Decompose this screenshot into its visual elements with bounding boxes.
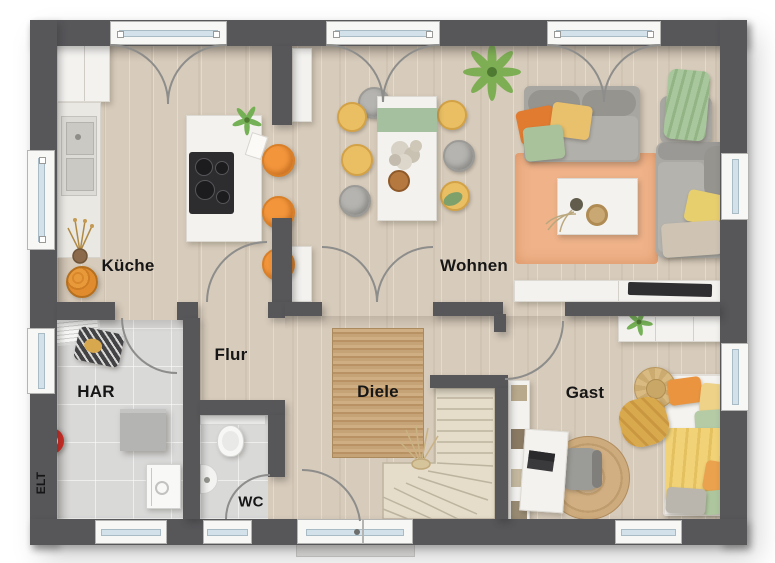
kitchen-tall-cabinet	[57, 40, 110, 102]
window-dining-top	[326, 21, 440, 45]
dining-chair-gray	[443, 140, 475, 172]
window-har-bottom	[95, 520, 167, 544]
window-kitchen-top	[110, 21, 227, 45]
table-runner	[377, 108, 437, 132]
bed-pillow-orange	[666, 376, 703, 406]
desk-chair-back	[592, 450, 602, 488]
dining-chair-yellow	[440, 181, 470, 211]
wall-living-south-a	[285, 302, 322, 316]
wall-exterior-left	[30, 20, 57, 545]
pillow-green	[522, 124, 565, 162]
wall-exterior-right	[720, 20, 747, 545]
guest-sideboard	[618, 316, 730, 342]
room-label-kueche: Küche	[102, 256, 155, 276]
wall-guest-door-stub	[494, 314, 506, 332]
kitchen-sink	[61, 116, 97, 196]
wall-kitchen-living-upper	[272, 46, 292, 125]
room-label-har: HAR	[77, 382, 114, 402]
wall-har-east	[183, 318, 200, 519]
wall-wc-east	[268, 415, 285, 477]
window-living-top	[547, 21, 661, 45]
tv-flatscreen	[628, 282, 712, 297]
wall-living-south-b	[433, 302, 503, 316]
wall-stair-east	[495, 388, 508, 519]
beige-blanket	[661, 220, 723, 258]
window-wc-bottom	[203, 520, 252, 544]
entrance-door	[297, 519, 413, 544]
jute-bowl	[586, 204, 608, 226]
laptop	[527, 450, 555, 471]
wall-stair-north	[430, 375, 508, 388]
room-label-gast: Gast	[566, 383, 605, 403]
desk	[519, 429, 569, 514]
green-throw	[663, 68, 711, 141]
bed-throw-gray	[665, 487, 707, 516]
window-har-left	[27, 328, 55, 394]
entrance-step	[296, 544, 415, 557]
dining-chair-yellow	[437, 100, 467, 130]
window-kitchen-left	[27, 150, 55, 250]
window-guest-right	[721, 343, 749, 411]
decor-vase	[570, 198, 583, 211]
wall-wc-north	[200, 400, 285, 415]
floor-plan: Küche Wohnen Flur Diele HAR ELT WC Gast	[0, 0, 775, 563]
wall-har-north-a	[57, 302, 115, 320]
corner-cabinet	[292, 48, 312, 122]
room-label-wc: WC	[238, 494, 263, 511]
dining-chair-gray	[339, 185, 371, 217]
wall-flur-diele-stub	[268, 302, 285, 318]
room-label-diele: Diele	[357, 382, 399, 402]
room-label-wohnen: Wohnen	[440, 256, 508, 276]
window-guest-bottom	[615, 520, 682, 544]
room-label-flur: Flur	[215, 345, 248, 365]
bar-stool	[262, 144, 295, 177]
toilet	[217, 425, 244, 457]
room-label-elt: ELT	[34, 472, 48, 494]
fruit-basket	[66, 266, 98, 298]
corner-cabinet	[290, 246, 312, 302]
wall-living-south-c	[565, 302, 720, 316]
washing-machine	[146, 464, 181, 509]
wc-shelf	[200, 415, 266, 425]
storage-cube	[120, 409, 166, 451]
copper-bowl	[388, 170, 410, 192]
dining-chair-yellow	[341, 144, 373, 176]
wall-kitchen-living-lower	[272, 218, 292, 302]
cooktop	[189, 152, 234, 214]
dining-chair-yellow	[337, 102, 367, 132]
window-living-right	[721, 153, 749, 220]
